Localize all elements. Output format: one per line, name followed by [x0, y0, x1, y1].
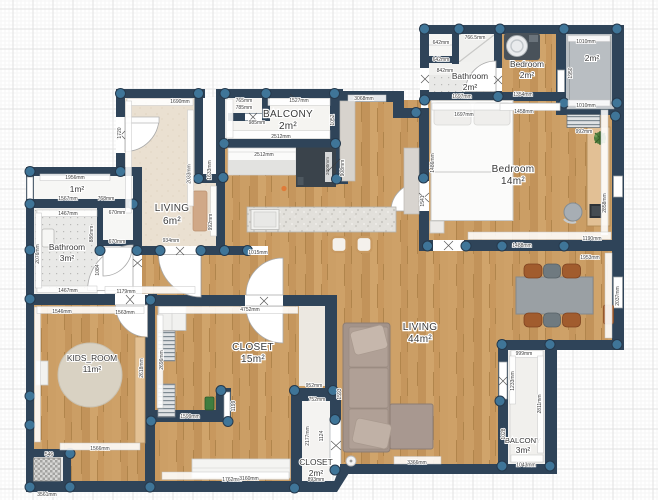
svg-text:Bathroom: Bathroom	[49, 242, 85, 252]
svg-text:1541: 1541	[420, 195, 426, 206]
svg-text:752mm: 752mm	[309, 397, 326, 403]
svg-text:1956mm: 1956mm	[65, 175, 84, 181]
svg-text:842mm: 842mm	[437, 68, 454, 74]
svg-text:11m²: 11m²	[83, 364, 102, 374]
svg-text:1052: 1052	[330, 114, 336, 125]
svg-text:2177mm: 2177mm	[305, 426, 311, 445]
svg-text:1697mm: 1697mm	[454, 112, 473, 118]
svg-text:BALCONY: BALCONY	[505, 436, 541, 445]
svg-text:2m²: 2m²	[463, 82, 478, 92]
svg-text:1233mm: 1233mm	[510, 371, 516, 390]
svg-text:1467mm: 1467mm	[58, 211, 77, 217]
svg-text:766.5mm: 766.5mm	[465, 35, 486, 41]
svg-text:1179mm: 1179mm	[116, 289, 135, 295]
svg-text:2696mm: 2696mm	[159, 350, 165, 369]
svg-text:Bedroom: Bedroom	[510, 59, 544, 69]
svg-text:642mm: 642mm	[433, 40, 450, 46]
svg-text:2076mm: 2076mm	[35, 244, 41, 263]
svg-text:6m²: 6m²	[163, 216, 181, 227]
svg-text:1486mm: 1486mm	[430, 153, 436, 172]
svg-text:1043mm: 1043mm	[516, 463, 535, 469]
svg-text:CLOSET: CLOSET	[232, 342, 274, 353]
svg-text:3m²: 3m²	[516, 445, 531, 455]
svg-text:1633mm: 1633mm	[207, 160, 213, 179]
svg-text:785mm: 785mm	[236, 105, 253, 111]
svg-text:LIVING: LIVING	[155, 203, 190, 214]
svg-text:2512mm: 2512mm	[271, 134, 290, 140]
svg-text:765mm: 765mm	[236, 98, 253, 104]
svg-text:44m²: 44m²	[408, 334, 432, 345]
svg-text:2811mm: 2811mm	[537, 394, 543, 413]
svg-text:Bedroom: Bedroom	[492, 164, 535, 175]
svg-text:1458mm: 1458mm	[514, 109, 533, 115]
svg-text:1566mm: 1566mm	[90, 446, 109, 452]
svg-text:992mm: 992mm	[208, 214, 214, 231]
svg-text:Bathroom: Bathroom	[452, 71, 488, 81]
svg-text:642mm: 642mm	[433, 57, 450, 63]
svg-text:1190mm: 1190mm	[582, 236, 601, 242]
svg-text:1467mm: 1467mm	[58, 288, 77, 294]
svg-text:1697mm: 1697mm	[452, 94, 471, 100]
svg-text:3068mm: 3068mm	[354, 96, 373, 102]
svg-text:LIVING: LIVING	[403, 322, 438, 333]
svg-text:992mm: 992mm	[576, 129, 593, 135]
svg-text:1593: 1593	[337, 388, 343, 399]
svg-text:2618mm: 2618mm	[139, 358, 145, 377]
svg-text:15m²: 15m²	[241, 354, 265, 365]
svg-text:934mm: 934mm	[163, 238, 180, 244]
svg-text:999mm: 999mm	[516, 351, 533, 357]
svg-text:908mm: 908mm	[340, 160, 346, 177]
svg-text:1015mm: 1015mm	[248, 250, 267, 256]
svg-text:2033mm: 2033mm	[187, 164, 193, 183]
svg-text:1488mm: 1488mm	[512, 243, 531, 249]
svg-text:2000mm: 2000mm	[325, 157, 330, 175]
svg-text:2512mm: 2512mm	[254, 152, 273, 158]
svg-text:3561mm: 3561mm	[37, 492, 56, 498]
svg-text:886mm: 886mm	[89, 226, 95, 243]
svg-text:1028: 1028	[501, 428, 507, 439]
svg-text:670mm: 670mm	[109, 239, 126, 245]
svg-text:2858mm: 2858mm	[602, 193, 608, 212]
svg-text:1950: 1950	[568, 67, 574, 78]
svg-text:1563mm: 1563mm	[115, 310, 134, 316]
svg-text:1199: 1199	[231, 400, 237, 411]
svg-text:1010mm: 1010mm	[576, 103, 595, 109]
svg-text:670mm: 670mm	[109, 210, 126, 216]
svg-text:3m²: 3m²	[60, 253, 75, 263]
svg-text:1720: 1720	[117, 127, 123, 138]
svg-text:1599mm: 1599mm	[180, 414, 199, 420]
svg-text:1010mm: 1010mm	[576, 39, 595, 45]
svg-text:CLOSET: CLOSET	[299, 457, 333, 467]
svg-text:1953mm: 1953mm	[580, 255, 599, 261]
svg-text:952mm: 952mm	[306, 383, 323, 389]
svg-text:14m²: 14m²	[501, 176, 525, 187]
svg-text:768mm: 768mm	[98, 196, 115, 202]
svg-text:4752mm: 4752mm	[240, 307, 259, 313]
svg-text:3160mm: 3160mm	[239, 476, 258, 482]
svg-text:1m²: 1m²	[70, 184, 85, 194]
svg-text:1546mm: 1546mm	[52, 309, 71, 315]
svg-text:1527mm: 1527mm	[289, 98, 308, 104]
svg-text:1690mm: 1690mm	[170, 99, 189, 105]
svg-text:BALCONY: BALCONY	[263, 109, 313, 120]
svg-text:2037mm: 2037mm	[615, 286, 621, 305]
svg-text:546: 546	[45, 452, 54, 458]
svg-text:985mm: 985mm	[249, 120, 266, 126]
svg-text:2m²: 2m²	[520, 70, 535, 80]
svg-text:1084: 1084	[95, 264, 101, 275]
svg-text:1567mm: 1567mm	[58, 196, 77, 202]
svg-text:1124: 1124	[319, 430, 325, 441]
svg-text:1354mm: 1354mm	[513, 92, 532, 98]
svg-text:2m²: 2m²	[585, 53, 600, 63]
svg-text:3366mm: 3366mm	[407, 460, 426, 466]
svg-text:KIDS_ROOM: KIDS_ROOM	[67, 353, 117, 363]
svg-text:893mm: 893mm	[308, 477, 325, 483]
